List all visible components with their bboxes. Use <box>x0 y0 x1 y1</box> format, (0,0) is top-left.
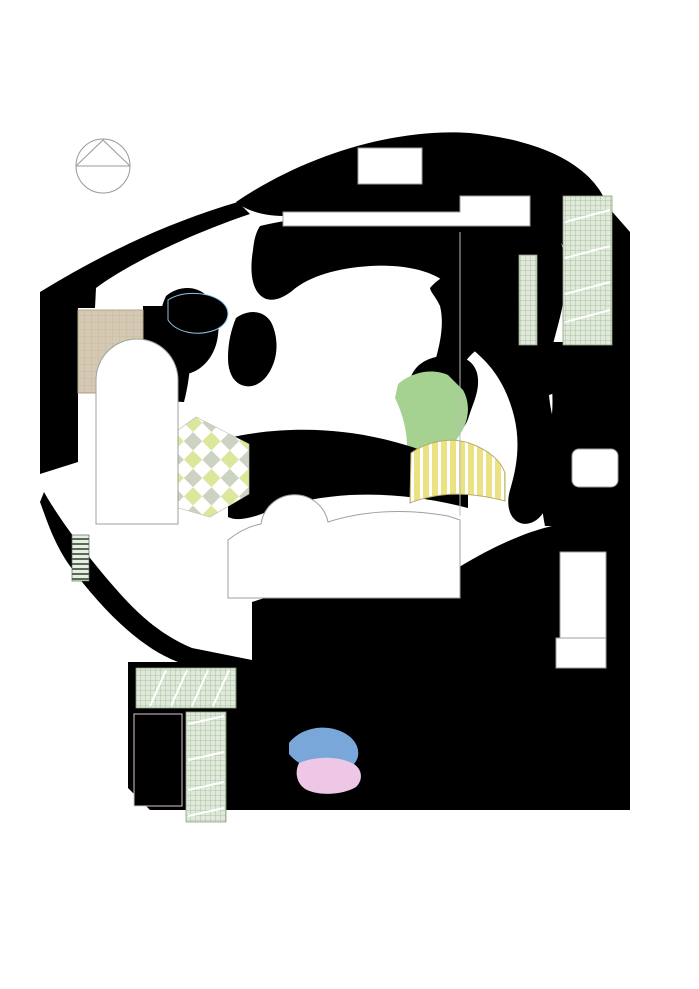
site-plan-drawing <box>0 0 699 989</box>
striped-paving-yellow <box>410 440 505 503</box>
parking-grid-southwest-col <box>186 712 226 822</box>
zone-pink-small <box>297 758 361 794</box>
building-west-dome <box>96 339 178 524</box>
building-east-2 <box>556 638 606 668</box>
parking-grid-east <box>563 196 612 345</box>
building-east-1 <box>560 552 606 638</box>
site-plan-page <box>0 0 699 989</box>
zone-salmon-blob <box>228 312 277 386</box>
pond <box>168 293 228 333</box>
bike-rack <box>72 535 89 581</box>
grass-grid-strip <box>519 255 537 345</box>
plaza-pink <box>134 714 182 806</box>
north-arrow-icon <box>76 139 130 193</box>
road-southeast-tail <box>618 822 665 888</box>
building-north-annex <box>358 148 422 184</box>
building-kiosk <box>572 449 618 487</box>
